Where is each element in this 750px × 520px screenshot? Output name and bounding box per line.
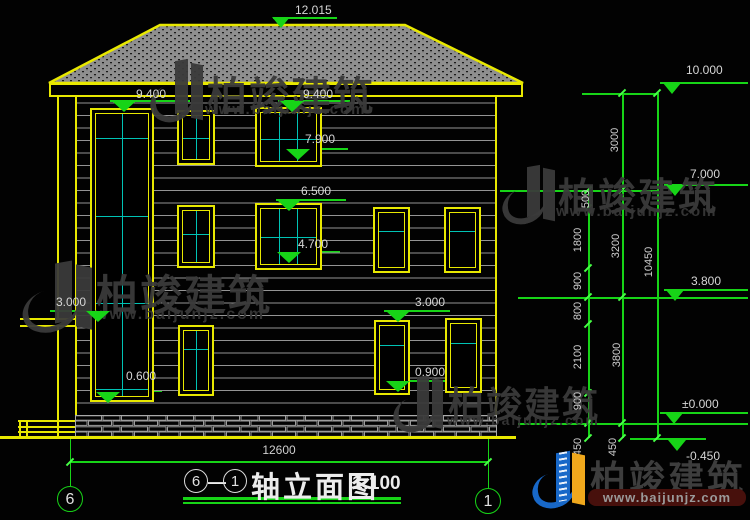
level-0000-label: ±0.000 [682, 397, 719, 411]
level-7000-label: 7.000 [690, 167, 720, 181]
dim-line-outer [622, 93, 624, 438]
level-7000-triangle [666, 185, 684, 196]
dim-line-width [70, 461, 488, 463]
win1-head-marker-triangle [386, 311, 410, 322]
dim-1800: 1800 [572, 228, 584, 252]
ridge-marker-triangle [272, 17, 290, 28]
watermark-site: www.baijunjz.com [95, 306, 265, 324]
dim-2100: 2100 [572, 345, 584, 369]
eave-right-marker-triangle [280, 101, 304, 112]
dim-900a: 900 [572, 272, 584, 290]
ridge-level-label: 12.015 [295, 3, 332, 17]
drawing-scale: 1:100 [352, 473, 401, 495]
title-bubble-end: 1 [223, 469, 247, 493]
dim-3800: 3800 [611, 343, 623, 367]
dim-total-width: 12600 [262, 443, 295, 457]
win1-sill-marker-triangle [386, 381, 410, 392]
eave-right-label: 9.400 [303, 87, 333, 101]
dim-total-height: 10450 [643, 247, 655, 278]
eave-left-marker-triangle [112, 101, 136, 112]
dim-800: 800 [572, 302, 584, 320]
dim-3200: 3200 [610, 234, 622, 258]
level-3800-line [518, 297, 748, 299]
level-0000-triangle [665, 413, 683, 424]
win2-sill-label: 4.700 [298, 237, 328, 251]
level-10000-label: 10.000 [686, 63, 723, 77]
elevation-drawing-canvas: 12.015 9.400 9.400 7.900 6.500 4.700 3.0… [0, 0, 750, 520]
level-10000-triangle [663, 83, 681, 94]
win3-sill-label: 7.900 [305, 132, 335, 146]
level-3800-triangle [666, 290, 684, 301]
axis-bubble-1: 1 [475, 488, 501, 514]
win2-sill-marker-triangle [277, 252, 301, 263]
stair-window-inner [95, 113, 149, 397]
axis-bubble-6: 6 [57, 486, 83, 512]
canopy-level-label: 3.000 [56, 295, 86, 309]
win3-sill-marker-triangle [286, 149, 310, 160]
win1-sill-label: 0.900 [415, 365, 445, 379]
dim-900b: 900 [572, 392, 584, 410]
win2-head-marker-triangle [277, 200, 301, 211]
canopy-marker-triangle [86, 311, 110, 322]
win2-head-label: 6.500 [301, 184, 331, 198]
watermark-logo-icon [502, 166, 557, 224]
dim-3000: 3000 [609, 128, 621, 152]
stair-sill-label: 0.600 [126, 369, 156, 383]
window-2f-1 [177, 205, 215, 268]
brand-logo-site: www.baijunjz.com [588, 489, 746, 506]
dim-500: 500 [580, 190, 592, 208]
porch-step-post [26, 420, 28, 437]
porch-step-post [19, 420, 21, 437]
window-2f-4 [444, 207, 481, 273]
title-bubble-start: 6 [184, 469, 208, 493]
watermark-site: www.baijunjz.com [447, 412, 600, 428]
stair-window [90, 108, 154, 402]
win1-head-label: 3.000 [415, 295, 445, 309]
level-3800-label: 3.800 [691, 274, 721, 288]
window-2f-3 [373, 207, 410, 273]
stair-sill-marker-triangle [96, 392, 120, 403]
brand-logo-icon [532, 452, 586, 508]
window-1f-1 [178, 325, 214, 396]
eave-left-label: 9.400 [136, 87, 166, 101]
ground-line [0, 436, 516, 439]
dim-line-total [657, 93, 659, 438]
